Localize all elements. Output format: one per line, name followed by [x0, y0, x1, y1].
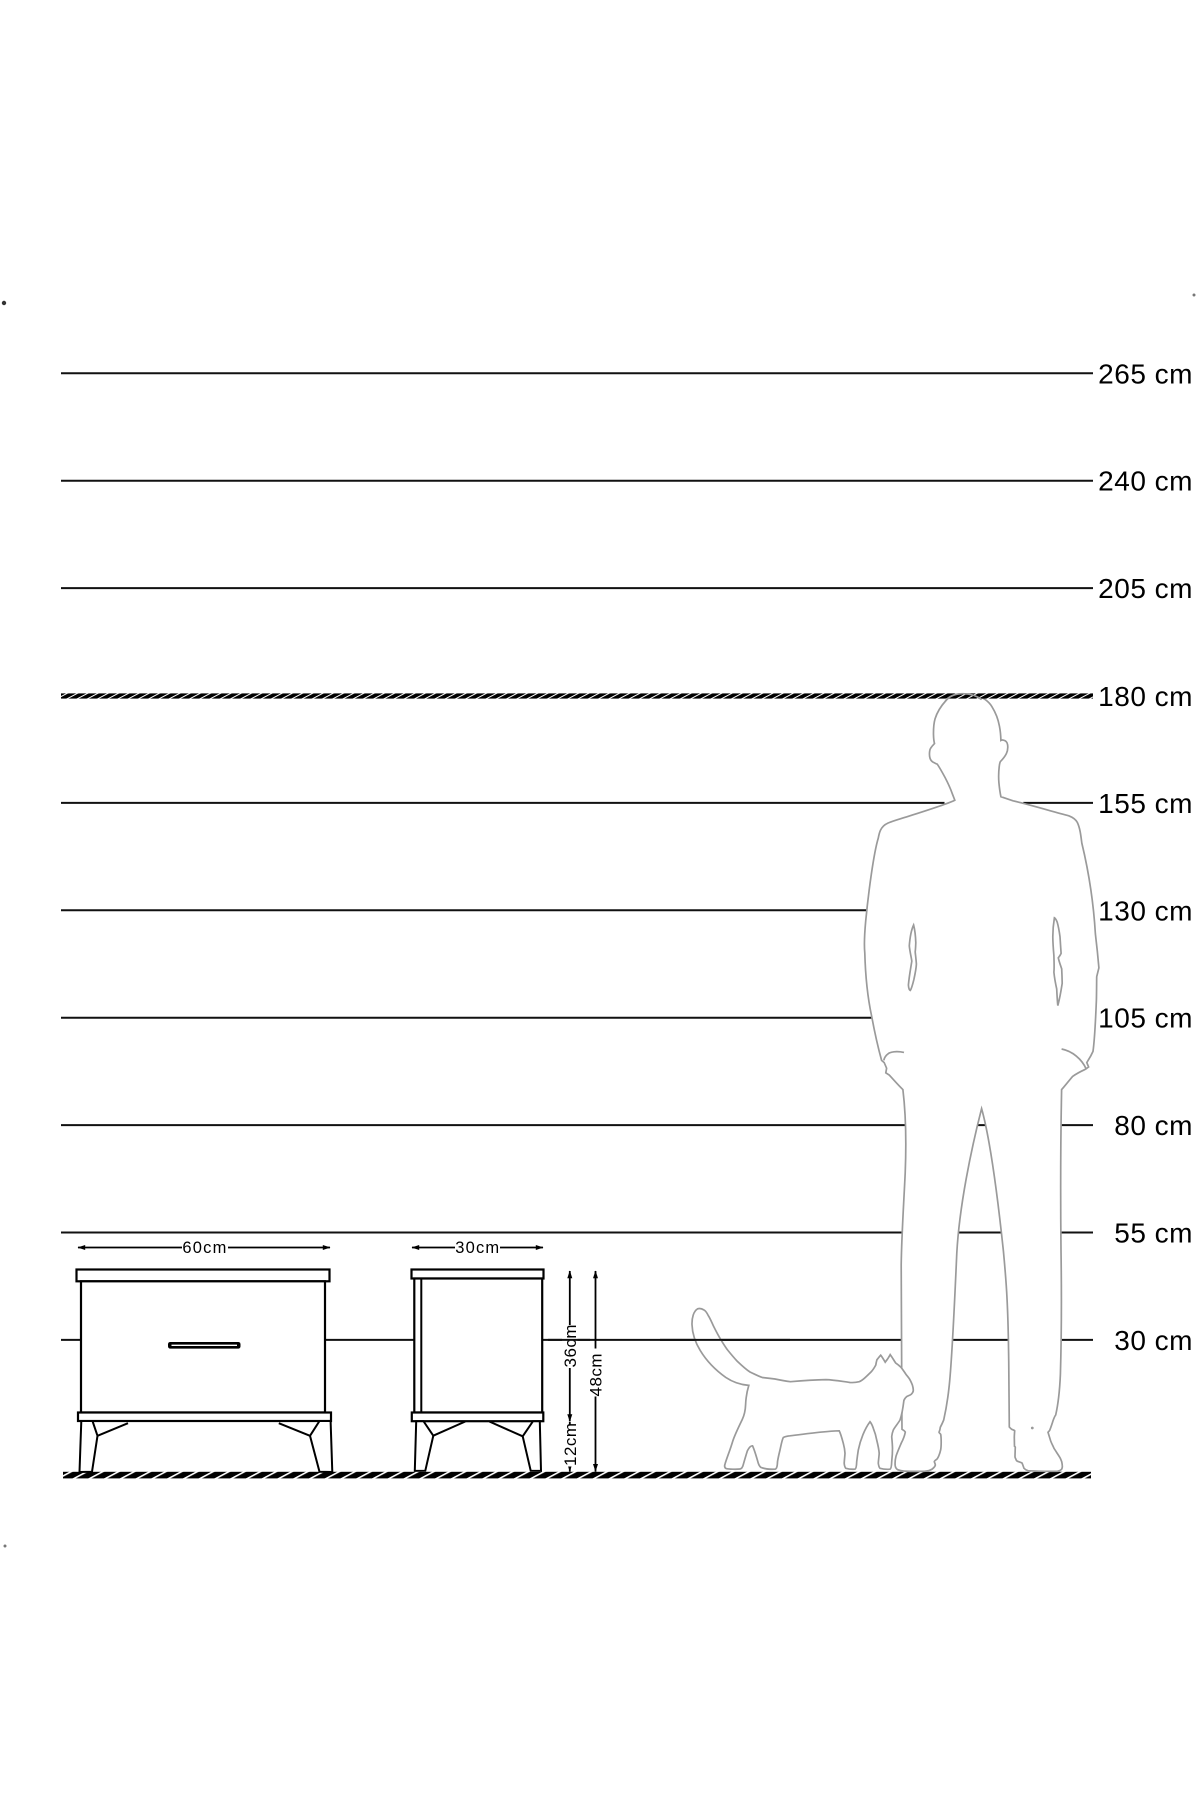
- svg-text:180 cm: 180 cm: [1098, 681, 1193, 712]
- svg-text:80 cm: 80 cm: [1114, 1110, 1193, 1141]
- svg-text:12cm: 12cm: [561, 1422, 580, 1466]
- svg-text:48cm: 48cm: [587, 1353, 606, 1397]
- svg-text:205 cm: 205 cm: [1098, 573, 1193, 604]
- svg-text:240 cm: 240 cm: [1098, 466, 1193, 497]
- svg-text:36cm: 36cm: [561, 1324, 580, 1368]
- svg-text:30 cm: 30 cm: [1114, 1325, 1193, 1356]
- svg-text:265 cm: 265 cm: [1098, 358, 1193, 389]
- svg-text:130 cm: 130 cm: [1098, 895, 1193, 926]
- svg-text:60cm: 60cm: [182, 1239, 227, 1257]
- svg-text:55 cm: 55 cm: [1114, 1218, 1193, 1249]
- svg-text:155 cm: 155 cm: [1098, 788, 1193, 819]
- svg-text:105 cm: 105 cm: [1098, 1003, 1193, 1034]
- svg-text:30cm: 30cm: [455, 1239, 500, 1257]
